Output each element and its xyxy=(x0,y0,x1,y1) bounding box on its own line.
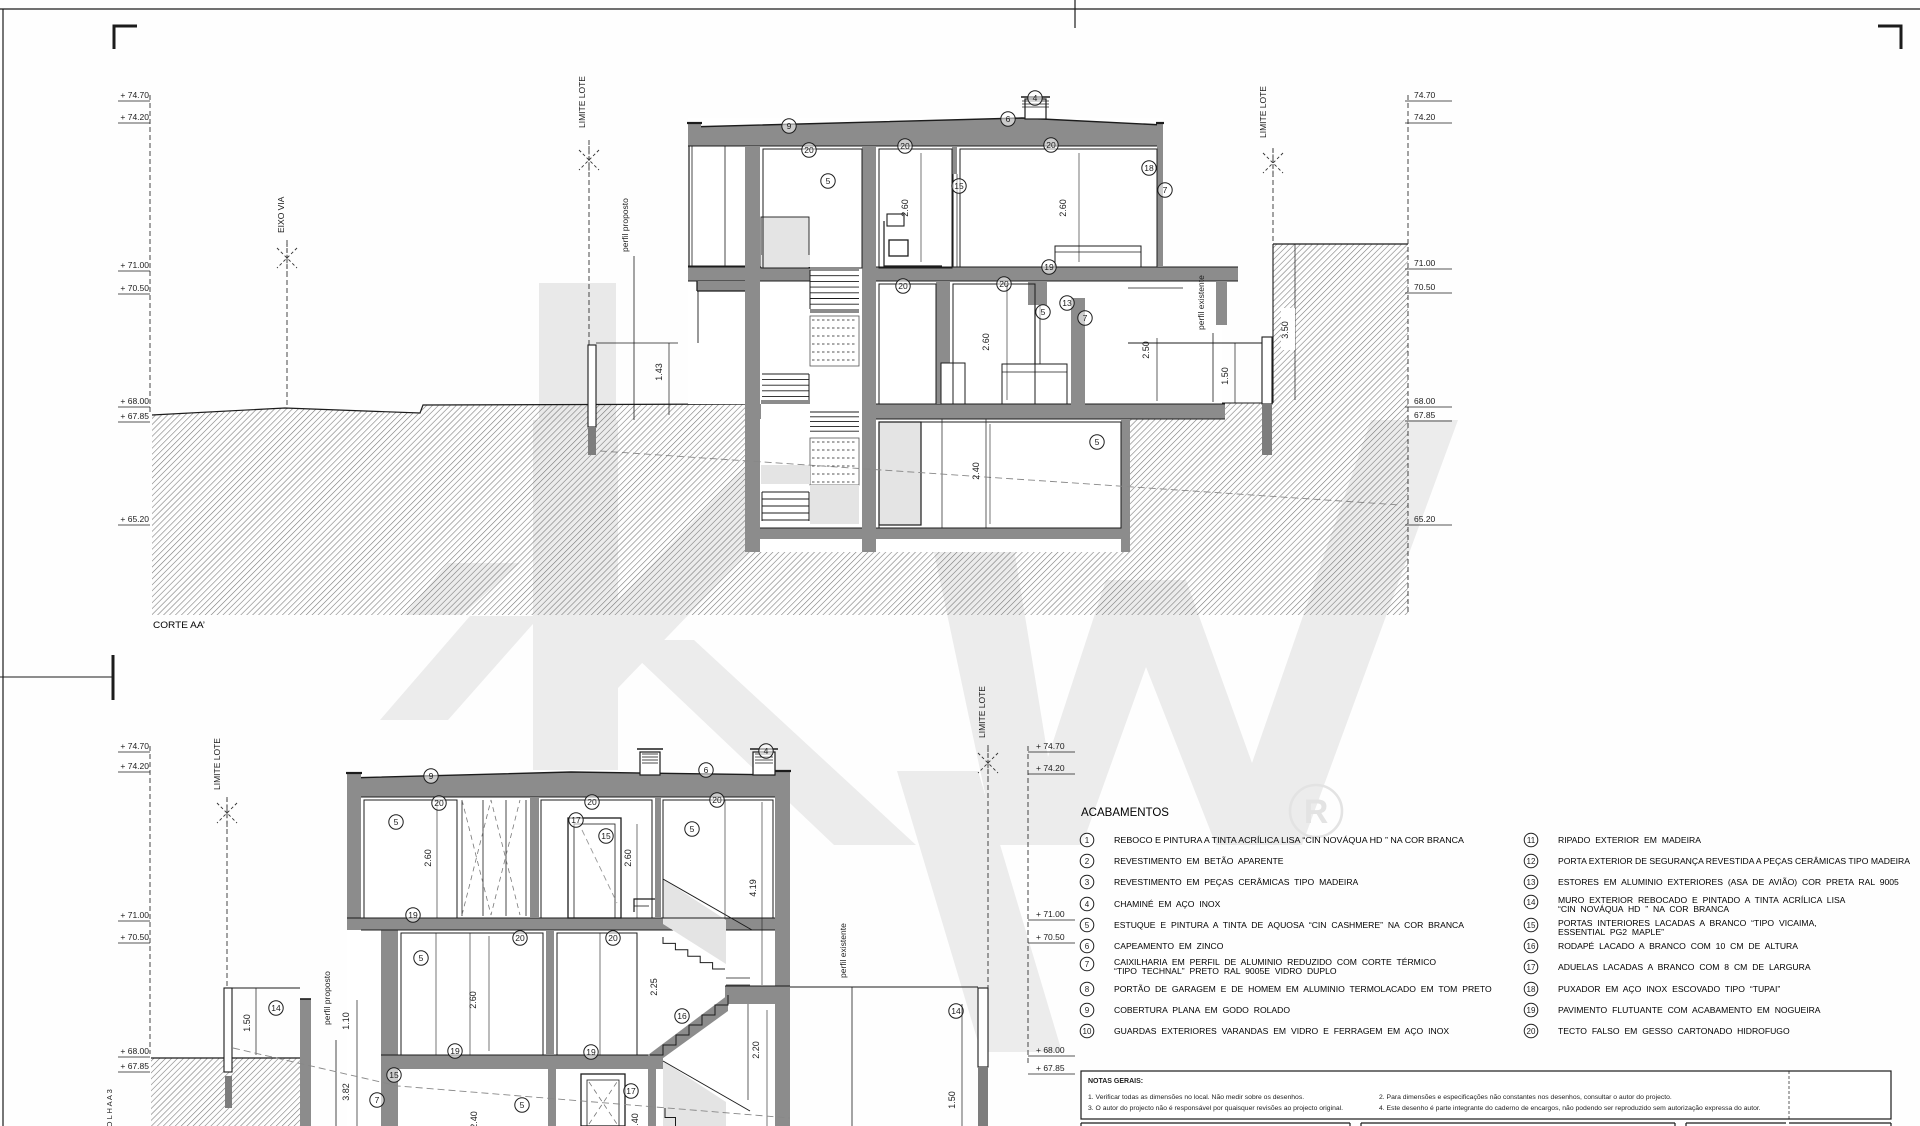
svg-text:5: 5 xyxy=(690,824,695,834)
svg-text:1.43: 1.43 xyxy=(654,363,664,381)
svg-text:+ 74.70: + 74.70 xyxy=(1036,741,1065,751)
svg-text:15: 15 xyxy=(1527,921,1536,930)
svg-text:5: 5 xyxy=(1095,437,1100,447)
svg-text:PORTA EXTERIOR DE SEGURANÇA RE: PORTA EXTERIOR DE SEGURANÇA REVESTIDA A … xyxy=(1558,856,1910,866)
svg-text:6: 6 xyxy=(704,765,709,775)
svg-text:PORTÃO DE GARAGEM E DE HOMEM E: PORTÃO DE GARAGEM E DE HOMEM EM ALUMINIO… xyxy=(1114,984,1492,994)
svg-text:3. O autor do projecto não é r: 3. O autor do projecto não é responsável… xyxy=(1088,1105,1343,1112)
svg-text:“TIPO TECHNAL” PRETO RAL 9005E: “TIPO TECHNAL” PRETO RAL 9005E VIDRO DUP… xyxy=(1114,966,1337,976)
svg-text:NOTAS GERAIS:: NOTAS GERAIS: xyxy=(1088,1078,1143,1085)
svg-text:ADUELAS LACADAS A BRANCO COM 8: ADUELAS LACADAS A BRANCO COM 8 CM DE LAR… xyxy=(1558,962,1811,972)
svg-text:19: 19 xyxy=(1044,262,1054,272)
svg-text:12: 12 xyxy=(1527,857,1536,866)
svg-text:LIMITE LOTE: LIMITE LOTE xyxy=(977,686,987,738)
svg-text:TECTO FALSO EM GESSO CARTONADO: TECTO FALSO EM GESSO CARTONADO HIDROFUGO xyxy=(1558,1026,1790,1036)
svg-text:+ 70.50: + 70.50 xyxy=(1036,932,1065,942)
svg-text:2.60: 2.60 xyxy=(468,991,478,1009)
svg-text:6: 6 xyxy=(1085,942,1090,951)
svg-text:16: 16 xyxy=(1527,942,1536,951)
svg-text:11: 11 xyxy=(1527,836,1536,845)
svg-text:perfil proposto: perfil proposto xyxy=(620,198,630,252)
svg-text:18: 18 xyxy=(1527,985,1536,994)
svg-text:perfil existente: perfil existente xyxy=(1196,275,1206,330)
svg-text:+ 65.20: + 65.20 xyxy=(120,514,149,524)
svg-text:65.20: 65.20 xyxy=(1414,514,1436,524)
svg-text:17: 17 xyxy=(1527,963,1536,972)
svg-text:4: 4 xyxy=(764,746,769,756)
svg-text:7: 7 xyxy=(1163,185,1168,195)
svg-text:RIPADO EXTERIOR EM MADEIRA: RIPADO EXTERIOR EM MADEIRA xyxy=(1558,835,1701,845)
svg-text:1: 1 xyxy=(1085,836,1090,845)
svg-text:LIMITE LOTE: LIMITE LOTE xyxy=(577,76,587,128)
svg-text:19: 19 xyxy=(450,1046,460,1056)
svg-text:14: 14 xyxy=(1527,898,1536,907)
svg-text:LIMITE LOTE: LIMITE LOTE xyxy=(212,738,222,790)
svg-text:ACABAMENTOS: ACABAMENTOS xyxy=(1081,807,1169,819)
svg-text:15: 15 xyxy=(954,181,964,191)
svg-text:5: 5 xyxy=(419,953,424,963)
svg-text:COBERTURA PLANA EM GODO ROLADO: COBERTURA PLANA EM GODO ROLADO xyxy=(1114,1005,1290,1015)
svg-text:+ 67.85: + 67.85 xyxy=(120,1061,149,1071)
svg-text:3: 3 xyxy=(1085,878,1090,887)
svg-text:GUARDAS EXTERIORES VARANDAS EM: GUARDAS EXTERIORES VARANDAS EM VIDRO E F… xyxy=(1114,1026,1449,1036)
svg-text:+ 68.00: + 68.00 xyxy=(1036,1045,1065,1055)
svg-text:68.00: 68.00 xyxy=(1414,396,1436,406)
svg-text:3.82: 3.82 xyxy=(341,1083,351,1101)
svg-text:15: 15 xyxy=(389,1070,399,1080)
svg-text:4.19: 4.19 xyxy=(748,879,758,897)
svg-text:20: 20 xyxy=(587,797,597,807)
svg-text:7: 7 xyxy=(375,1095,380,1105)
svg-text:+ 74.20: + 74.20 xyxy=(120,761,149,771)
svg-text:4: 4 xyxy=(1033,93,1038,103)
svg-text:4. Este desenho é parte integr: 4. Este desenho é parte integrante do ca… xyxy=(1379,1105,1761,1112)
svg-text:+ 70.50: + 70.50 xyxy=(120,932,149,942)
svg-text:2.60: 2.60 xyxy=(900,199,910,217)
svg-text:F O L H A A 3: F O L H A A 3 xyxy=(105,1089,114,1126)
svg-text:20: 20 xyxy=(900,141,910,151)
svg-text:2: 2 xyxy=(1085,857,1090,866)
svg-text:LIMITE LOTE: LIMITE LOTE xyxy=(1258,86,1268,138)
svg-text:CORTE AA’: CORTE AA’ xyxy=(153,620,205,630)
svg-text:2.60: 2.60 xyxy=(1058,199,1068,217)
svg-text:1.10: 1.10 xyxy=(341,1012,351,1030)
svg-text:REVESTIMENTO EM PEÇAS CERÂMICA: REVESTIMENTO EM PEÇAS CERÂMICAS TIPO MAD… xyxy=(1114,877,1359,887)
svg-text:4: 4 xyxy=(1085,900,1090,909)
svg-text:2.40: 2.40 xyxy=(630,1113,640,1126)
svg-text:1.50: 1.50 xyxy=(1220,367,1230,385)
svg-text:20: 20 xyxy=(712,795,722,805)
svg-text:18: 18 xyxy=(1144,163,1154,173)
svg-text:REVESTIMENTO EM BETÃO APARENTE: REVESTIMENTO EM BETÃO APARENTE xyxy=(1114,856,1284,866)
svg-text:8: 8 xyxy=(1085,985,1090,994)
svg-text:“CIN NOVÁQUA HD ” NA COR BRANC: “CIN NOVÁQUA HD ” NA COR BRANCA xyxy=(1558,904,1729,914)
svg-text:+ 74.20: + 74.20 xyxy=(120,112,149,122)
svg-text:+ 67.85: + 67.85 xyxy=(1036,1063,1065,1073)
svg-text:19: 19 xyxy=(1527,1006,1536,1015)
svg-text:17: 17 xyxy=(626,1086,636,1096)
svg-text:PAVIMENTO FLUTUANTE COM ACABAM: PAVIMENTO FLUTUANTE COM ACABAMENTO EM NO… xyxy=(1558,1005,1821,1015)
svg-text:2.60: 2.60 xyxy=(623,849,633,867)
svg-text:19: 19 xyxy=(408,910,418,920)
svg-text:7: 7 xyxy=(1083,313,1088,323)
svg-text:14: 14 xyxy=(271,1003,281,1013)
svg-text:20: 20 xyxy=(1046,140,1056,150)
svg-text:20: 20 xyxy=(1527,1027,1536,1036)
svg-text:5: 5 xyxy=(394,817,399,827)
svg-text:+ 71.00: + 71.00 xyxy=(120,260,149,270)
svg-text:70.50: 70.50 xyxy=(1414,282,1436,292)
svg-text:14: 14 xyxy=(951,1006,961,1016)
svg-text:1.50: 1.50 xyxy=(947,1091,957,1109)
svg-text:5: 5 xyxy=(1041,307,1046,317)
svg-text:PUXADOR EM AÇO INOX ESCOVADO T: PUXADOR EM AÇO INOX ESCOVADO TIPO “TUPAI… xyxy=(1558,984,1780,994)
svg-text:RODAPÉ LACADO A BRANCO COM 10: RODAPÉ LACADO A BRANCO COM 10 CM DE ALTU… xyxy=(1558,941,1798,951)
svg-text:+ 67.85: + 67.85 xyxy=(120,411,149,421)
svg-text:71.00: 71.00 xyxy=(1414,258,1436,268)
svg-text:+ 71.00: + 71.00 xyxy=(1036,909,1065,919)
svg-text:5: 5 xyxy=(520,1100,525,1110)
svg-text:5: 5 xyxy=(826,176,831,186)
svg-text:2.40: 2.40 xyxy=(971,462,981,480)
svg-text:74.20: 74.20 xyxy=(1414,112,1436,122)
svg-text:2.20: 2.20 xyxy=(751,1041,761,1059)
svg-text:5: 5 xyxy=(1085,921,1090,930)
svg-text:EIXO VIA: EIXO VIA xyxy=(276,196,286,233)
svg-text:10: 10 xyxy=(1083,1027,1092,1036)
svg-text:6: 6 xyxy=(1006,114,1011,124)
svg-text:+ 74.70: + 74.70 xyxy=(120,741,149,751)
svg-text:15: 15 xyxy=(601,831,611,841)
svg-text:2.60: 2.60 xyxy=(423,849,433,867)
svg-text:20: 20 xyxy=(999,279,1009,289)
svg-text:CAPEAMENTO EM ZINCO: CAPEAMENTO EM ZINCO xyxy=(1114,941,1224,951)
svg-text:2.60: 2.60 xyxy=(981,333,991,351)
svg-text:CHAMINÉ EM AÇO INOX: CHAMINÉ EM AÇO INOX xyxy=(1114,899,1221,909)
svg-text:+ 70.50: + 70.50 xyxy=(120,283,149,293)
svg-text:2.40: 2.40 xyxy=(469,1111,479,1126)
svg-text:13: 13 xyxy=(1527,878,1536,887)
svg-text:1. Verificar todas as dimensõe: 1. Verificar todas as dimensões no local… xyxy=(1088,1094,1304,1101)
svg-text:9: 9 xyxy=(787,121,792,131)
svg-text:19: 19 xyxy=(586,1047,596,1057)
svg-text:+ 71.00: + 71.00 xyxy=(120,910,149,920)
svg-text:20: 20 xyxy=(608,933,618,943)
svg-text:ESTORES EM ALUMINIO EXTERIORES: ESTORES EM ALUMINIO EXTERIORES (ASA DE A… xyxy=(1558,877,1899,887)
svg-text:+ 68.00: + 68.00 xyxy=(120,396,149,406)
svg-text:9: 9 xyxy=(429,771,434,781)
svg-text:16: 16 xyxy=(677,1011,687,1021)
svg-text:+ 68.00: + 68.00 xyxy=(120,1046,149,1056)
svg-text:20: 20 xyxy=(434,798,444,808)
svg-text:REBOCO E PINTURA A TINTA ACRÍL: REBOCO E PINTURA A TINTA ACRÍLICA LISA “… xyxy=(1114,835,1464,845)
svg-text:20: 20 xyxy=(515,933,525,943)
svg-text:+ 74.20: + 74.20 xyxy=(1036,763,1065,773)
svg-text:74.70: 74.70 xyxy=(1414,90,1436,100)
svg-text:ESTUQUE E PINTURA A TINTA DE A: ESTUQUE E PINTURA A TINTA DE AQUOSA “CIN… xyxy=(1114,920,1464,930)
svg-text:3.50: 3.50 xyxy=(1280,321,1290,339)
svg-text:perfil existente: perfil existente xyxy=(838,923,848,978)
svg-text:+ 74.70: + 74.70 xyxy=(120,90,149,100)
svg-text:67.85: 67.85 xyxy=(1414,410,1436,420)
svg-text:R: R xyxy=(1304,793,1329,831)
svg-text:2.25: 2.25 xyxy=(649,978,659,996)
svg-text:2.50: 2.50 xyxy=(1141,341,1151,359)
svg-text:20: 20 xyxy=(804,145,814,155)
svg-text:17: 17 xyxy=(571,815,581,825)
svg-text:9: 9 xyxy=(1085,1006,1090,1015)
svg-text:ESSENTIAL PG2 MAPLE”: ESSENTIAL PG2 MAPLE” xyxy=(1558,927,1664,937)
svg-text:13: 13 xyxy=(1062,298,1072,308)
svg-text:2. Para dimensões e especifica: 2. Para dimensões e especificações não c… xyxy=(1379,1094,1672,1101)
svg-text:7: 7 xyxy=(1085,960,1090,969)
svg-text:perfil proposto: perfil proposto xyxy=(322,971,332,1025)
svg-text:1.50: 1.50 xyxy=(242,1014,252,1032)
svg-text:20: 20 xyxy=(898,281,908,291)
